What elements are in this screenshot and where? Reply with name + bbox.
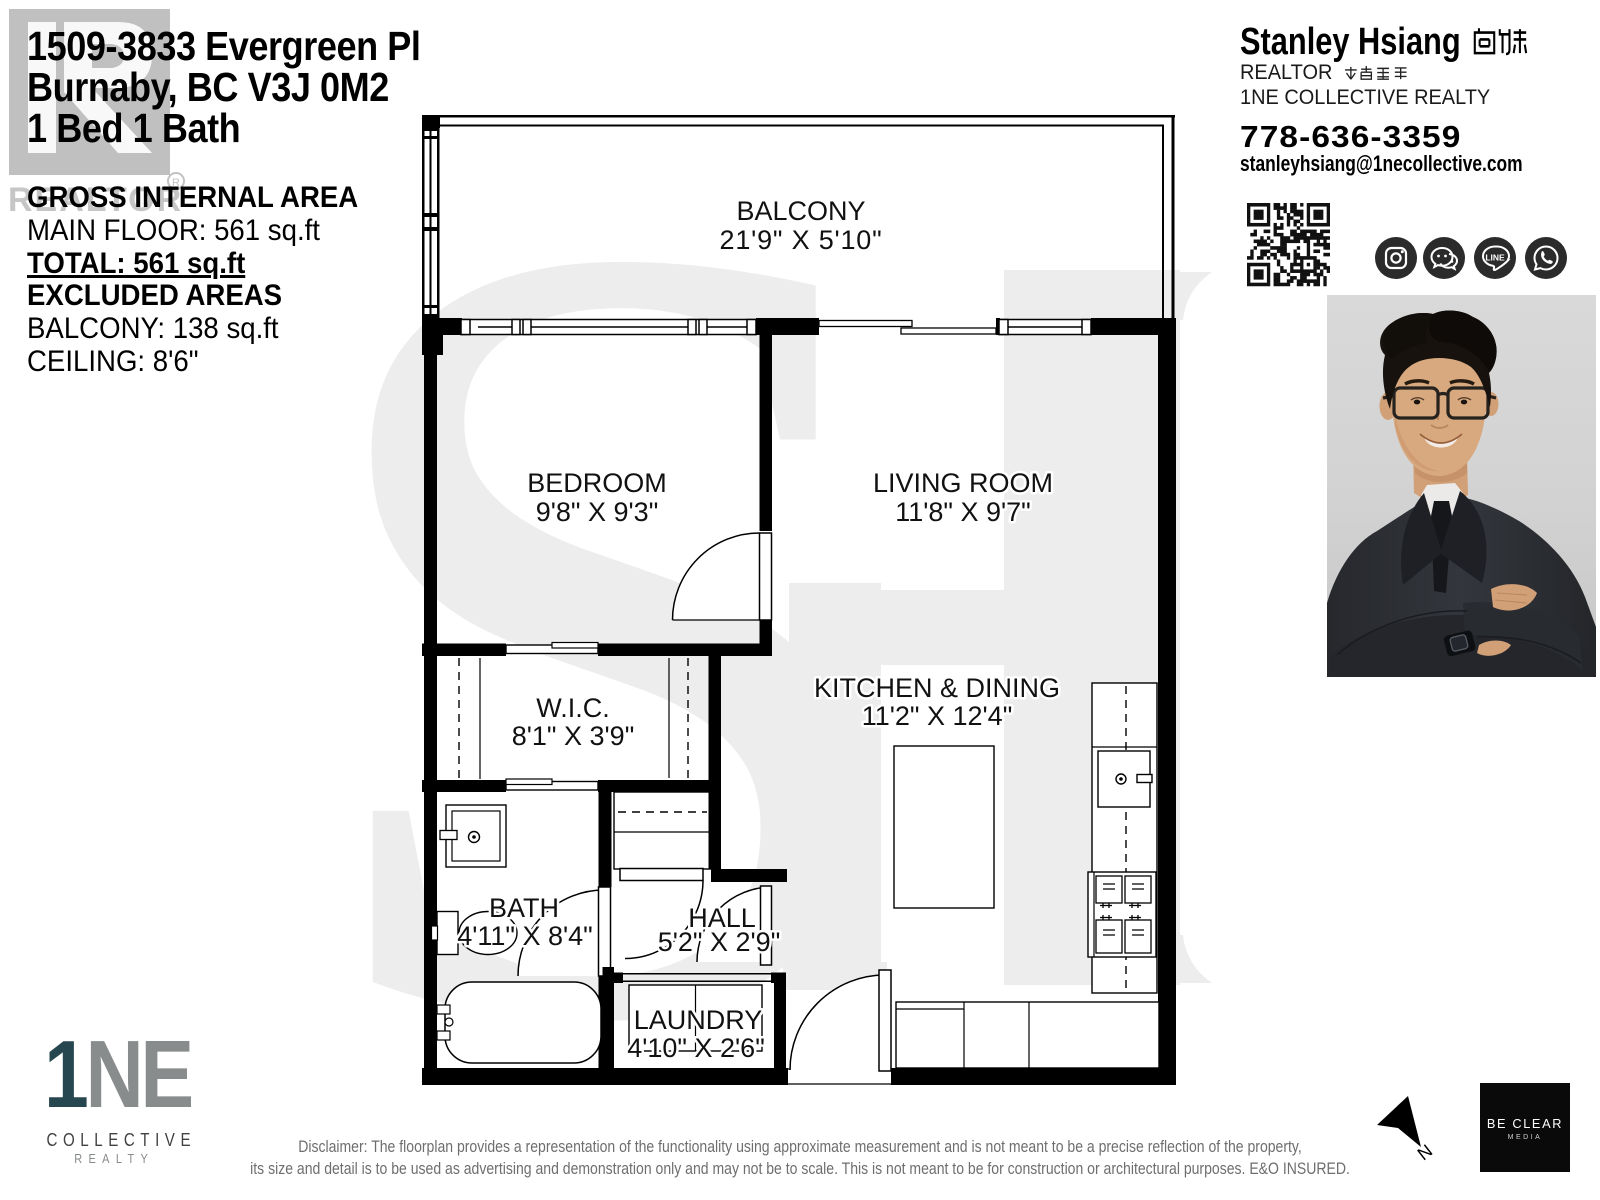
svg-text:4'10" X 2'6": 4'10" X 2'6": [627, 1033, 765, 1063]
svg-text:21'9" X 5'10": 21'9" X 5'10": [720, 225, 883, 255]
svg-text:BEDROOM: BEDROOM: [527, 468, 667, 498]
svg-text:BATH: BATH: [489, 893, 559, 923]
svg-text:8'1" X 3'9": 8'1" X 3'9": [512, 721, 635, 751]
svg-text:9'8" X 9'3": 9'8" X 9'3": [536, 497, 659, 527]
svg-text:4'11" X 8'4": 4'11" X 8'4": [457, 921, 593, 951]
svg-text:11'2" X 12'4": 11'2" X 12'4": [862, 701, 1013, 731]
svg-text:BALCONY: BALCONY: [736, 196, 865, 226]
svg-text:11'8" X 9'7": 11'8" X 9'7": [895, 497, 1031, 527]
svg-text:N: N: [1414, 1141, 1437, 1165]
svg-text:W.I.C.: W.I.C.: [536, 693, 610, 723]
svg-text:LIVING ROOM: LIVING ROOM: [873, 468, 1053, 498]
svg-text:LAUNDRY: LAUNDRY: [634, 1005, 763, 1035]
svg-text:KITCHEN & DINING: KITCHEN & DINING: [814, 673, 1060, 703]
svg-text:5'2" X 2'9": 5'2" X 2'9": [658, 927, 781, 957]
